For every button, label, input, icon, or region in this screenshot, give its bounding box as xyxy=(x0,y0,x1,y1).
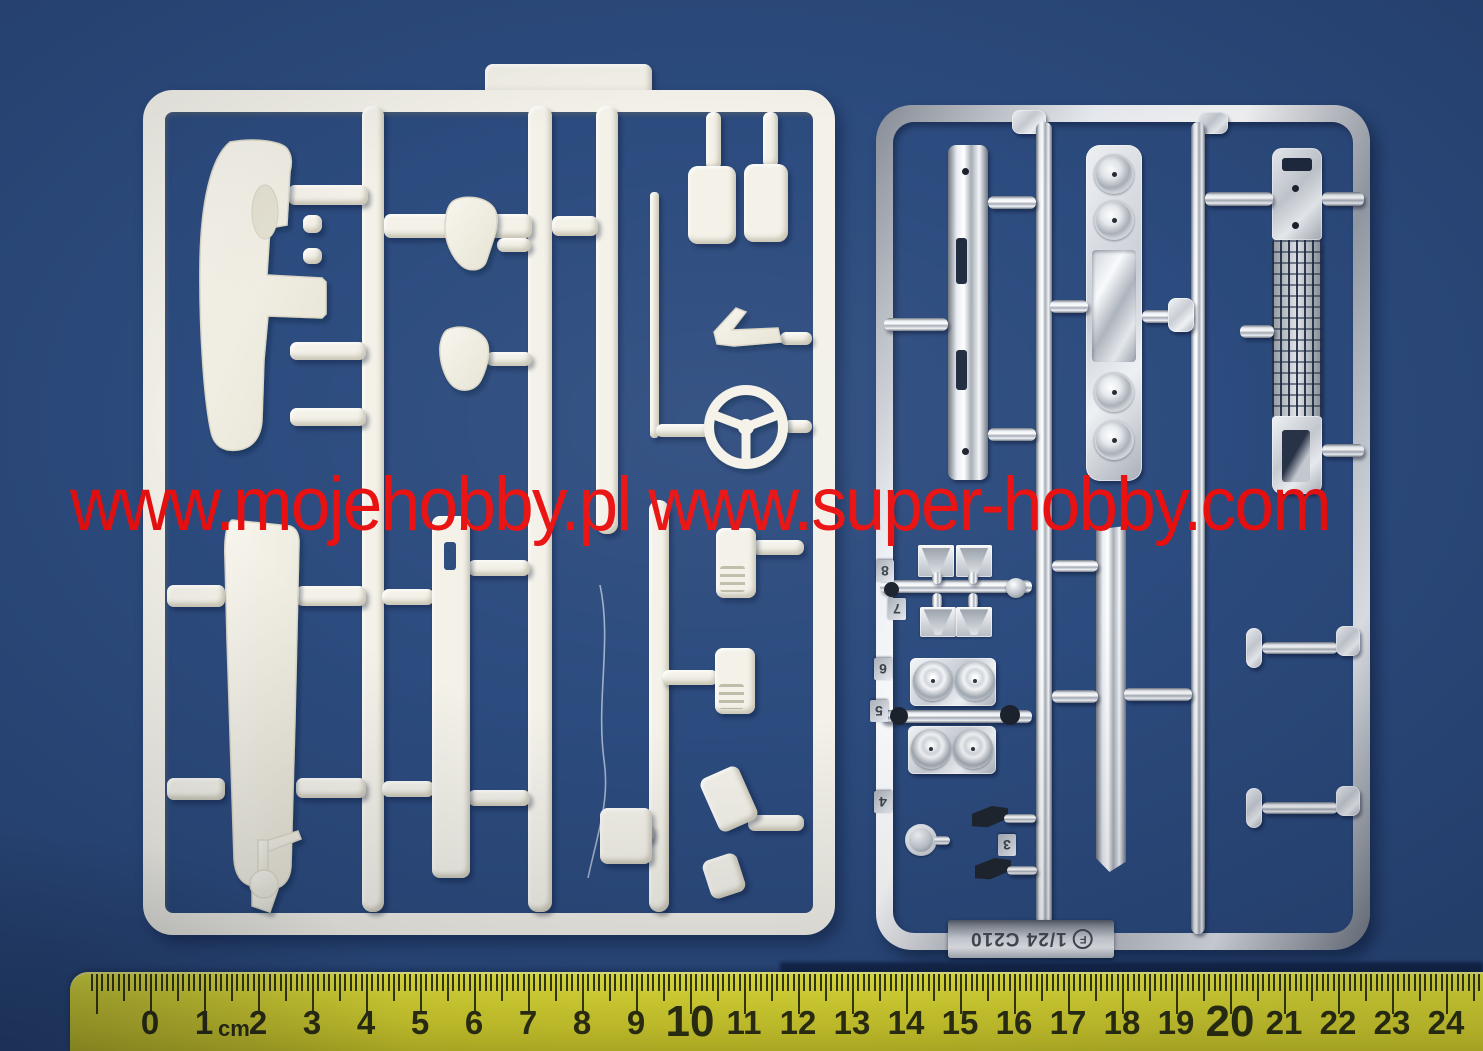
ruler-tick xyxy=(944,974,946,991)
ruler-tick xyxy=(226,974,228,991)
part-number-tag: 7 xyxy=(888,598,906,620)
ruler-tick xyxy=(1441,974,1443,991)
ruler-tick xyxy=(933,974,935,1001)
ruler-tick xyxy=(971,974,973,991)
ruler-tick xyxy=(1322,974,1324,991)
ruler-tick xyxy=(96,974,98,1014)
ruler-number: 0 xyxy=(141,1006,159,1039)
ruler-tick xyxy=(323,974,325,991)
grille-mesh-part xyxy=(1272,240,1322,416)
ruler-tick xyxy=(377,974,379,991)
part-number-tag: 5 xyxy=(870,700,888,722)
ruler-tick xyxy=(685,974,687,991)
runner-stub xyxy=(296,778,366,798)
ruler-tick xyxy=(1198,974,1200,991)
sprue-id-text: F 1/24 C210 xyxy=(970,929,1093,949)
ruler-tick xyxy=(679,974,681,991)
ruler-tick xyxy=(436,974,438,991)
ruler-tick xyxy=(922,974,924,991)
ruler-tick xyxy=(317,974,319,991)
ruler-tick xyxy=(1360,974,1362,991)
ruler-unit-label: cm xyxy=(218,1018,250,1040)
model-kit-sprues-photo: 8 7 6 5 4 3 F 1/24 C210 www xyxy=(0,0,1483,1051)
ruler-number: 8 xyxy=(573,1006,591,1039)
ruler-tick xyxy=(830,974,832,991)
watermark-text: www.mojehobby.pl www.super-hobby.com xyxy=(70,467,1330,543)
ruler-tick xyxy=(172,974,174,991)
runner-stub xyxy=(1262,642,1338,654)
ruler-tick xyxy=(787,974,789,991)
ruler-tick xyxy=(1154,974,1156,991)
scale-and-code: 1/24 C210 xyxy=(970,930,1067,949)
ruler-tick xyxy=(1111,974,1113,991)
ruler-tick xyxy=(1311,974,1313,1001)
ruler-tick xyxy=(868,974,870,991)
part-number-tag: 6 xyxy=(874,658,892,680)
ruler-tick xyxy=(911,974,913,991)
sprue-id-tag: F 1/24 C210 xyxy=(948,920,1114,958)
ruler-tick xyxy=(215,974,217,991)
ruler-tick xyxy=(101,974,103,991)
ruler-tick xyxy=(231,974,233,1001)
ruler-tick xyxy=(447,974,449,1001)
ruler-tick xyxy=(782,974,784,991)
ruler-tick xyxy=(1333,974,1335,991)
ruler-tick xyxy=(1106,974,1108,991)
ruler-tick xyxy=(712,974,714,991)
ruler-tick xyxy=(1117,974,1119,991)
runner-stub xyxy=(1050,300,1088,313)
ruler-tick xyxy=(987,974,989,1001)
bumper-part xyxy=(948,145,988,480)
ruler-tick xyxy=(393,974,395,1001)
ruler-tick xyxy=(1457,974,1459,991)
runner-hole xyxy=(1000,705,1020,725)
ruler-tick xyxy=(1473,974,1475,1001)
ruler-number: 11 xyxy=(727,1006,762,1039)
ruler-tick xyxy=(674,974,676,991)
ruler-tick xyxy=(1414,974,1416,991)
runner-stub xyxy=(290,408,366,426)
ruler-tick xyxy=(1063,974,1065,991)
ruler-tick xyxy=(1435,974,1437,991)
ruler-tick xyxy=(285,974,287,1001)
part-number: 8 xyxy=(881,564,889,578)
tail-panel-recess xyxy=(1092,250,1136,362)
ruler-tick xyxy=(609,974,611,1001)
ruler-tick xyxy=(1052,974,1054,991)
runner-stub xyxy=(288,185,368,205)
ruler-number: 16 xyxy=(996,1006,1033,1039)
ruler-tick xyxy=(469,974,471,991)
runner-stub xyxy=(552,216,598,236)
ruler-tick xyxy=(533,974,535,991)
ruler-tick xyxy=(517,974,519,991)
ruler-number: 14 xyxy=(888,1006,925,1039)
reflector-housing-part xyxy=(956,607,992,637)
headlight-bucket xyxy=(911,729,951,769)
ruler-tick xyxy=(701,974,703,991)
ruler-tick xyxy=(928,974,930,991)
ruler-tick xyxy=(496,974,498,991)
runner-stub xyxy=(468,560,530,576)
ruler-tick xyxy=(1451,974,1453,991)
ruler-number: 23 xyxy=(1374,1006,1411,1039)
ruler-number: 13 xyxy=(834,1006,871,1039)
ruler-tick xyxy=(463,974,465,991)
ruler-tick xyxy=(1419,974,1421,1001)
runner-stub xyxy=(780,332,812,345)
ruler-tick xyxy=(901,974,903,991)
ruler-tick xyxy=(1257,974,1259,1001)
runner-stub xyxy=(988,196,1036,209)
ruler-number: 3 xyxy=(303,1006,321,1039)
ruler-tick xyxy=(339,974,341,1001)
ruler-tick xyxy=(301,974,303,991)
ruler-tick xyxy=(1316,974,1318,991)
ruler-tick xyxy=(1468,974,1470,991)
ruler-tick xyxy=(334,974,336,991)
ruler-tick xyxy=(1387,974,1389,991)
ruler-tick xyxy=(668,974,670,991)
ruler-tick xyxy=(1478,974,1480,991)
ruler-tick xyxy=(1262,974,1264,991)
ruler-tick xyxy=(1041,974,1043,1001)
ruler-tick xyxy=(560,974,562,991)
ruler-tick xyxy=(145,974,147,991)
ruler-number: 5 xyxy=(411,1006,429,1039)
ruler-tick xyxy=(803,974,805,991)
ruler-number: 6 xyxy=(465,1006,483,1039)
ruler-tick xyxy=(253,974,255,991)
grille-opening xyxy=(1282,158,1312,171)
ruler-tick xyxy=(1343,974,1345,991)
ruler-tick xyxy=(1295,974,1297,991)
chrome-ball xyxy=(1006,578,1026,598)
ruler-tick xyxy=(1079,974,1081,991)
ruler-tick xyxy=(814,974,816,991)
part-number: 6 xyxy=(879,662,887,676)
runner-stub xyxy=(468,790,530,806)
seat-cushion-part xyxy=(744,164,788,242)
ruler-tick xyxy=(1090,974,1092,991)
ruler-tick xyxy=(199,974,201,991)
runner-stub xyxy=(1052,560,1098,572)
tail-lamp xyxy=(1094,372,1134,412)
ruler-tick xyxy=(625,974,627,991)
ruler-tick xyxy=(442,974,444,991)
part-number-tag: 4 xyxy=(874,791,892,813)
ruler-tick xyxy=(1165,974,1167,991)
ruler-tick xyxy=(1219,974,1221,991)
ruler-tick xyxy=(1181,974,1183,991)
ruler-tick xyxy=(539,974,541,991)
small-block-part xyxy=(303,248,322,264)
ruler-tick xyxy=(847,974,849,991)
ruler-tick xyxy=(733,974,735,991)
runner-stub xyxy=(884,318,948,331)
ruler-tick xyxy=(760,974,762,991)
ruler-tick xyxy=(776,974,778,991)
ruler-tick xyxy=(490,974,492,991)
ruler-tick xyxy=(388,974,390,991)
ruler-tick xyxy=(647,974,649,991)
ruler-number: 24 xyxy=(1428,1006,1465,1039)
ruler-tick xyxy=(1376,974,1378,991)
ruler-tick xyxy=(895,974,897,991)
ruler-tick xyxy=(425,974,427,991)
ruler-tick xyxy=(641,974,643,991)
ruler-tick xyxy=(1300,974,1302,991)
runner-stub xyxy=(1262,802,1338,814)
ruler-tick xyxy=(112,974,114,991)
ruler-tick xyxy=(242,974,244,991)
ruler-tick xyxy=(1095,974,1097,1001)
ruler-tick xyxy=(955,974,957,991)
ruler-tick xyxy=(523,974,525,991)
ruler-tick xyxy=(1036,974,1038,991)
ruler-number: 10 xyxy=(666,1000,715,1044)
ruler-number: 19 xyxy=(1158,1006,1195,1039)
ruler-tick xyxy=(890,974,892,991)
ruler-tick xyxy=(506,974,508,991)
ruler-tick xyxy=(982,974,984,991)
ruler-tick xyxy=(1381,974,1383,991)
ruler-tick xyxy=(555,974,557,1001)
runner-stub xyxy=(1124,688,1192,701)
ruler-tick xyxy=(1073,974,1075,991)
ruler-tick xyxy=(1003,974,1005,991)
headlight-bucket xyxy=(955,661,995,701)
runner-stub xyxy=(382,589,434,605)
ruler-tick xyxy=(188,974,190,991)
ruler-tick xyxy=(550,974,552,991)
ruler-tick xyxy=(809,974,811,991)
ruler-tick xyxy=(1208,974,1210,991)
runner-stub xyxy=(167,585,225,607)
runner-stub xyxy=(968,572,978,584)
ruler-tick xyxy=(836,974,838,991)
ruler-tick xyxy=(485,974,487,991)
ruler-number: 17 xyxy=(1050,1006,1087,1039)
runner-stub xyxy=(497,238,531,252)
ruler-tick xyxy=(290,974,292,991)
ruler-tick xyxy=(917,974,919,991)
ruler-number: 2 xyxy=(249,1006,267,1039)
tail-lamp xyxy=(1094,200,1134,240)
ruler-tick xyxy=(825,974,827,1001)
ruler-tick xyxy=(604,974,606,991)
ruler-tick xyxy=(1241,974,1243,991)
ruler-tick xyxy=(863,974,865,991)
ruler-tick xyxy=(452,974,454,991)
ruler-tick xyxy=(1192,974,1194,991)
ruler-tick xyxy=(1246,974,1248,991)
tail-lamp xyxy=(1094,154,1134,194)
ruler-tick xyxy=(479,974,481,991)
ruler-number: 22 xyxy=(1320,1006,1357,1039)
reflector-housing-part xyxy=(920,607,956,637)
ruler-tick xyxy=(371,974,373,991)
ruler-tick xyxy=(1462,974,1464,991)
ruler-tick xyxy=(739,974,741,991)
ruler-tick xyxy=(1349,974,1351,991)
ruler-number: 18 xyxy=(1104,1006,1141,1039)
ruler-tick xyxy=(415,974,417,991)
runner-stub xyxy=(486,352,532,366)
door-handle-part xyxy=(1246,628,1262,668)
ruler-number: 4 xyxy=(357,1006,375,1039)
ruler-tick xyxy=(1171,974,1173,991)
ruler-tick xyxy=(209,974,211,991)
ruler-tick xyxy=(857,974,859,991)
ruler-tick xyxy=(1046,974,1048,991)
ruler-tick xyxy=(134,974,136,991)
runner-stub xyxy=(1004,814,1036,823)
ruler-tick xyxy=(1214,974,1216,991)
ruler-tick xyxy=(1397,974,1399,991)
ruler-tick xyxy=(458,974,460,991)
ruler-tick xyxy=(263,974,265,991)
ruler-tick xyxy=(1019,974,1021,991)
small-bracket-part xyxy=(1168,298,1194,332)
ruler-tick xyxy=(614,974,616,991)
seat-cushion-part xyxy=(688,166,736,244)
ruler-tick xyxy=(766,974,768,991)
sprue-rod xyxy=(650,192,659,438)
ruler-tick xyxy=(355,974,357,991)
ruler-tick xyxy=(1187,974,1189,991)
ruler-tick xyxy=(755,974,757,991)
ruler-tick xyxy=(577,974,579,991)
runner-stub xyxy=(1322,444,1364,457)
ruler-tick xyxy=(1133,974,1135,991)
ruler-tick xyxy=(344,974,346,991)
runner-stub xyxy=(784,420,812,433)
ruler-tick xyxy=(965,974,967,991)
ruler-number: 12 xyxy=(780,1006,817,1039)
ruler-tick xyxy=(501,974,503,1001)
ruler-tick xyxy=(1138,974,1140,991)
runner-stub xyxy=(167,778,225,800)
ruler-tick xyxy=(717,974,719,1001)
ruler-tick xyxy=(728,974,730,991)
ruler-tick xyxy=(1127,974,1129,991)
ruler-tick xyxy=(1430,974,1432,991)
ruler-tick xyxy=(107,974,109,991)
ruler-tick xyxy=(949,974,951,991)
ruler-tick xyxy=(398,974,400,991)
runner-stub xyxy=(290,342,366,360)
ruler-tick xyxy=(879,974,881,1001)
ruler-tick xyxy=(296,974,298,991)
ruler-tick xyxy=(1273,974,1275,991)
grille-hole xyxy=(1292,222,1299,229)
ruler-tick xyxy=(193,974,195,991)
ruler-tick xyxy=(884,974,886,991)
ruler-number: 9 xyxy=(627,1006,645,1039)
ruler-tick xyxy=(1424,974,1426,991)
ruler-tick xyxy=(1289,974,1291,991)
ruler-tick xyxy=(1306,974,1308,991)
ruler-tick xyxy=(1268,974,1270,991)
ruler-tick xyxy=(177,974,179,1001)
ruler-tick xyxy=(1279,974,1281,991)
ruler-tick xyxy=(350,974,352,991)
molding-tab xyxy=(1336,626,1360,656)
runner-stub xyxy=(763,112,778,168)
runner-hole xyxy=(890,707,908,725)
part-number-tag: 8 xyxy=(876,560,894,582)
runner-stub xyxy=(384,214,532,238)
ruler-tick xyxy=(1225,974,1227,991)
ruler-tick xyxy=(571,974,573,991)
ruler-tick xyxy=(1057,974,1059,991)
runner-stub xyxy=(1322,192,1364,206)
ruler-tick xyxy=(123,974,125,1001)
ruler-tick xyxy=(512,974,514,991)
ruler-tick xyxy=(1403,974,1405,991)
runner-stub xyxy=(706,112,721,170)
ruler-tick xyxy=(409,974,411,991)
ruler-tick xyxy=(328,974,330,991)
ruler-tick xyxy=(247,974,249,991)
sprue-runner xyxy=(649,500,669,912)
ruler-tick xyxy=(544,974,546,991)
ruler-tick xyxy=(1327,974,1329,991)
ruler-tick xyxy=(382,974,384,991)
ruler-tick xyxy=(1149,974,1151,1001)
ruler-tick xyxy=(1100,974,1102,991)
ruler-tick xyxy=(166,974,168,991)
runner-stub xyxy=(656,424,710,437)
ruler-number: 21 xyxy=(1266,1006,1303,1039)
runner-stub xyxy=(1205,192,1273,206)
ruler-tick xyxy=(598,974,600,991)
runner-stub xyxy=(1052,690,1098,703)
ruler-tick xyxy=(976,974,978,991)
ruler-tick xyxy=(236,974,238,991)
molding-tab xyxy=(1336,786,1360,816)
ruler-tick xyxy=(992,974,994,991)
ruler-tick xyxy=(1030,974,1032,991)
ruler-tick xyxy=(652,974,654,991)
ruler-tick xyxy=(128,974,130,991)
part-number-tag: 3 xyxy=(998,834,1016,856)
ruler-number: 7 xyxy=(519,1006,537,1039)
ruler-tick xyxy=(361,974,363,991)
ruler-tick xyxy=(706,974,708,991)
ruler-number: 20 xyxy=(1206,1000,1255,1044)
ruler-tick xyxy=(1365,974,1367,1001)
part-number: 4 xyxy=(879,795,887,809)
ruler-tick xyxy=(793,974,795,991)
runner-stub xyxy=(748,815,804,831)
ruler-tick xyxy=(1408,974,1410,991)
ruler-tick xyxy=(1144,974,1146,991)
runner-stub xyxy=(932,572,942,584)
part-number: 3 xyxy=(1003,838,1011,852)
ruler-tick xyxy=(1252,974,1254,991)
ruler-tick xyxy=(1009,974,1011,991)
ruler-tick xyxy=(269,974,271,991)
ruler-tick xyxy=(587,974,589,991)
ruler-tick xyxy=(1354,974,1356,991)
ruler-tick xyxy=(404,974,406,991)
ruler-tick xyxy=(620,974,622,991)
headlight-bucket xyxy=(913,661,953,701)
part-number: 7 xyxy=(893,602,901,616)
